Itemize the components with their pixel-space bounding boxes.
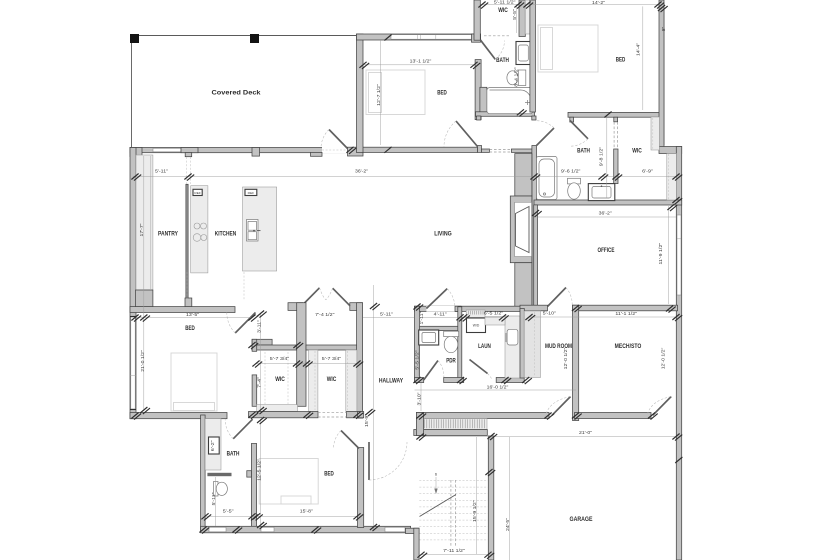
svg-text:HALLWAY: HALLWAY <box>379 378 404 385</box>
svg-text:5'-11": 5'-11" <box>155 168 168 173</box>
svg-text:6'-9": 6'-9" <box>642 168 653 173</box>
svg-text:PDR: PDR <box>446 358 456 365</box>
svg-text:7'-11 1/2": 7'-11 1/2" <box>443 548 465 553</box>
svg-text:36'-2": 36'-2" <box>599 210 612 215</box>
svg-text:21'-0": 21'-0" <box>579 430 592 435</box>
svg-text:15'-9 1/2": 15'-9 1/2" <box>472 500 477 522</box>
svg-text:WIC: WIC <box>632 148 642 155</box>
svg-text:9'-6 1/2": 9'-6 1/2" <box>561 168 581 173</box>
svg-text:13'-1 1/2": 13'-1 1/2" <box>410 59 432 64</box>
svg-text:5'-5 1/2": 5'-5 1/2" <box>415 350 420 370</box>
svg-text:21'-0 1/2": 21'-0 1/2" <box>140 350 145 372</box>
svg-text:8'-4 1/2": 8'-4 1/2" <box>513 67 518 87</box>
svg-text:OFFICE: OFFICE <box>598 247 615 254</box>
svg-text:11'-1 1/2": 11'-1 1/2" <box>615 311 637 316</box>
svg-text:7'-4": 7'-4" <box>256 377 261 388</box>
svg-text:12'-5 1/2": 12'-5 1/2" <box>257 459 262 481</box>
svg-text:5'-5": 5'-5" <box>512 9 517 20</box>
svg-text:12'-7 1/2": 12'-7 1/2" <box>376 84 381 106</box>
svg-text:KITCHEN: KITCHEN <box>215 231 237 238</box>
svg-text:LAUN: LAUN <box>478 343 491 350</box>
svg-text:5'-11": 5'-11" <box>380 312 393 317</box>
svg-text:REF: REF <box>248 191 255 195</box>
svg-text:4'-11": 4'-11" <box>434 312 447 317</box>
svg-text:BATH: BATH <box>496 57 509 64</box>
svg-text:Covered Deck: Covered Deck <box>212 90 261 97</box>
svg-text:5'-11 1/2": 5'-11 1/2" <box>494 0 516 4</box>
svg-text:MUD ROOM: MUD ROOM <box>545 343 572 350</box>
svg-text:9'-8 1/2": 9'-8 1/2" <box>598 146 603 166</box>
svg-text:BED: BED <box>185 325 195 332</box>
svg-text:3'-10": 3'-10" <box>417 392 422 405</box>
svg-text:16'-0 1/2": 16'-0 1/2" <box>487 384 509 389</box>
svg-text:6'-5 1/2": 6'-5 1/2" <box>484 311 504 316</box>
svg-text:WIC: WIC <box>275 376 285 383</box>
svg-text:MECH/STO: MECH/STO <box>615 343 642 350</box>
svg-text:BED: BED <box>437 90 447 97</box>
svg-text:WIC: WIC <box>327 376 337 383</box>
svg-text:7'-4 1/2": 7'-4 1/2" <box>315 312 335 317</box>
svg-text:5'-7 3/4": 5'-7 3/4" <box>322 356 342 361</box>
svg-text:GARAGE: GARAGE <box>570 516 593 523</box>
svg-text:BATH: BATH <box>577 148 590 155</box>
svg-text:6'-2": 6'-2" <box>210 440 215 451</box>
svg-text:5'-10": 5'-10" <box>543 311 556 316</box>
svg-text:12'-0 1/2": 12'-0 1/2" <box>563 347 568 369</box>
svg-text:5'-7 3/4": 5'-7 3/4" <box>270 356 290 361</box>
svg-text:5'-5": 5'-5" <box>223 509 234 514</box>
svg-text:WIC: WIC <box>498 7 508 14</box>
svg-text:6: 6 <box>435 473 437 477</box>
svg-text:12'-0 1/2": 12'-0 1/2" <box>660 347 665 369</box>
svg-text:13'-5": 13'-5" <box>186 312 199 317</box>
svg-text:W/D: W/D <box>473 324 480 328</box>
svg-text:8": 8" <box>661 26 666 31</box>
svg-text:15'-8": 15'-8" <box>300 509 313 514</box>
svg-text:3'-11": 3'-11" <box>257 320 262 333</box>
svg-text:1'-11": 1'-11" <box>419 311 424 324</box>
svg-text:11'-9 1/2": 11'-9 1/2" <box>658 242 663 264</box>
svg-text:14'-4": 14'-4" <box>635 43 640 56</box>
svg-text:5'-11": 5'-11" <box>211 492 216 505</box>
svg-text:BED: BED <box>616 57 626 64</box>
svg-text:LIVING: LIVING <box>434 231 452 238</box>
svg-text:BED: BED <box>324 471 334 478</box>
svg-text:PANTRY: PANTRY <box>158 231 178 238</box>
svg-text:17'-7": 17'-7" <box>139 223 144 236</box>
svg-text:BATH: BATH <box>227 451 240 458</box>
svg-text:REF: REF <box>194 191 201 195</box>
svg-text:14'-2": 14'-2" <box>592 0 605 5</box>
svg-text:24'-5": 24'-5" <box>505 518 510 531</box>
svg-text:36'-2": 36'-2" <box>355 168 368 173</box>
